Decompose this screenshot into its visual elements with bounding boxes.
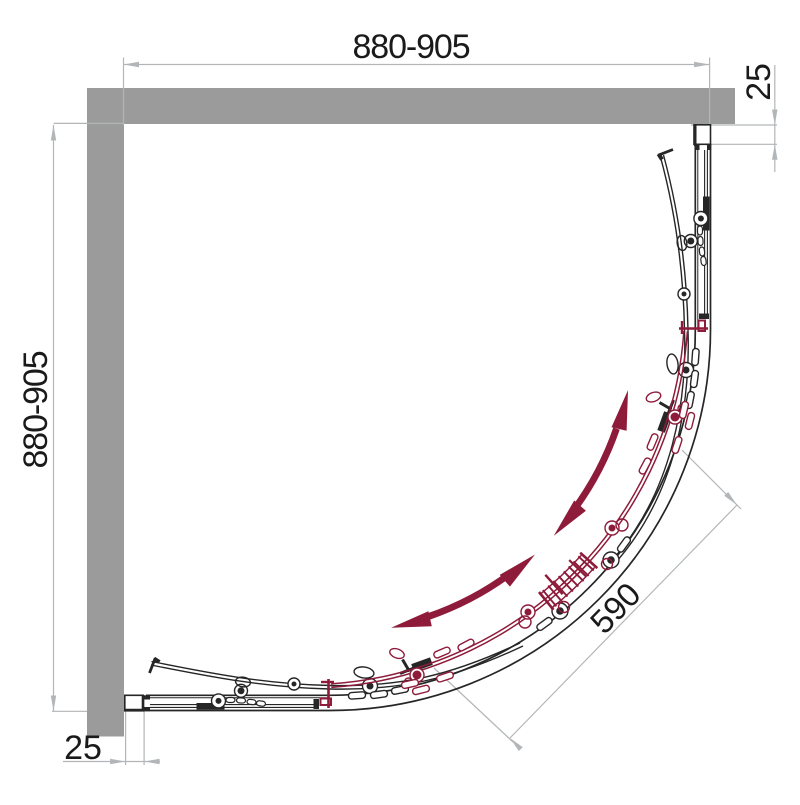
svg-text:25: 25 <box>64 729 102 767</box>
svg-text:25: 25 <box>740 63 778 101</box>
svg-text:880-905: 880-905 <box>17 351 55 468</box>
svg-text:880-905: 880-905 <box>352 28 469 66</box>
